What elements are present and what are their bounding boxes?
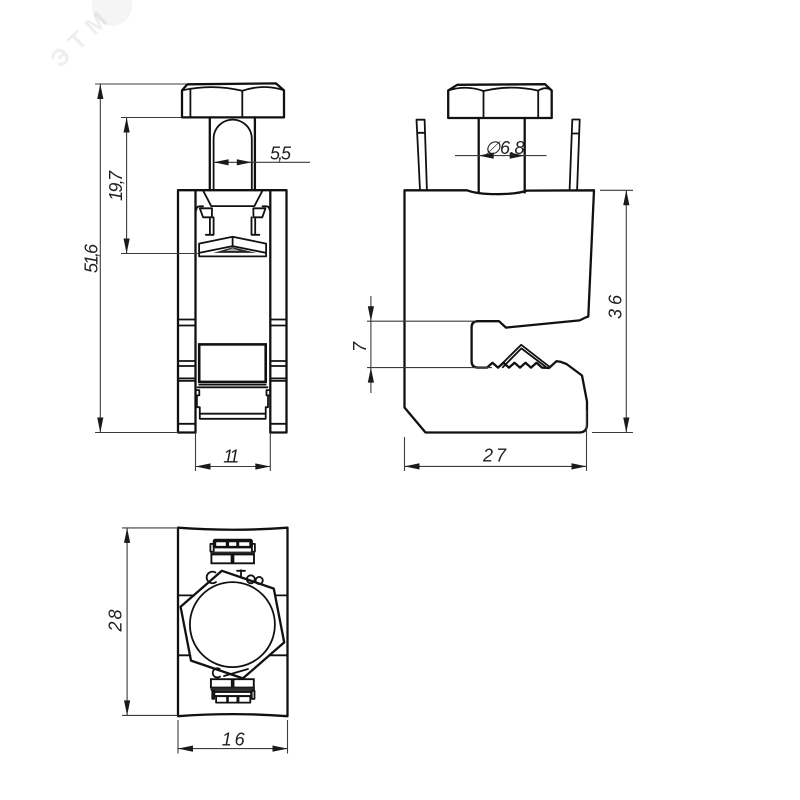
svg-text:∅6,8: ∅6,8 [485, 138, 525, 158]
svg-text:5,5: 5,5 [270, 144, 292, 164]
svg-text:19,7: 19,7 [106, 170, 126, 201]
svg-text:51,6: 51,6 [82, 243, 102, 273]
svg-text:16: 16 [222, 730, 246, 750]
svg-text:7: 7 [350, 341, 370, 352]
svg-text:11: 11 [223, 447, 239, 467]
